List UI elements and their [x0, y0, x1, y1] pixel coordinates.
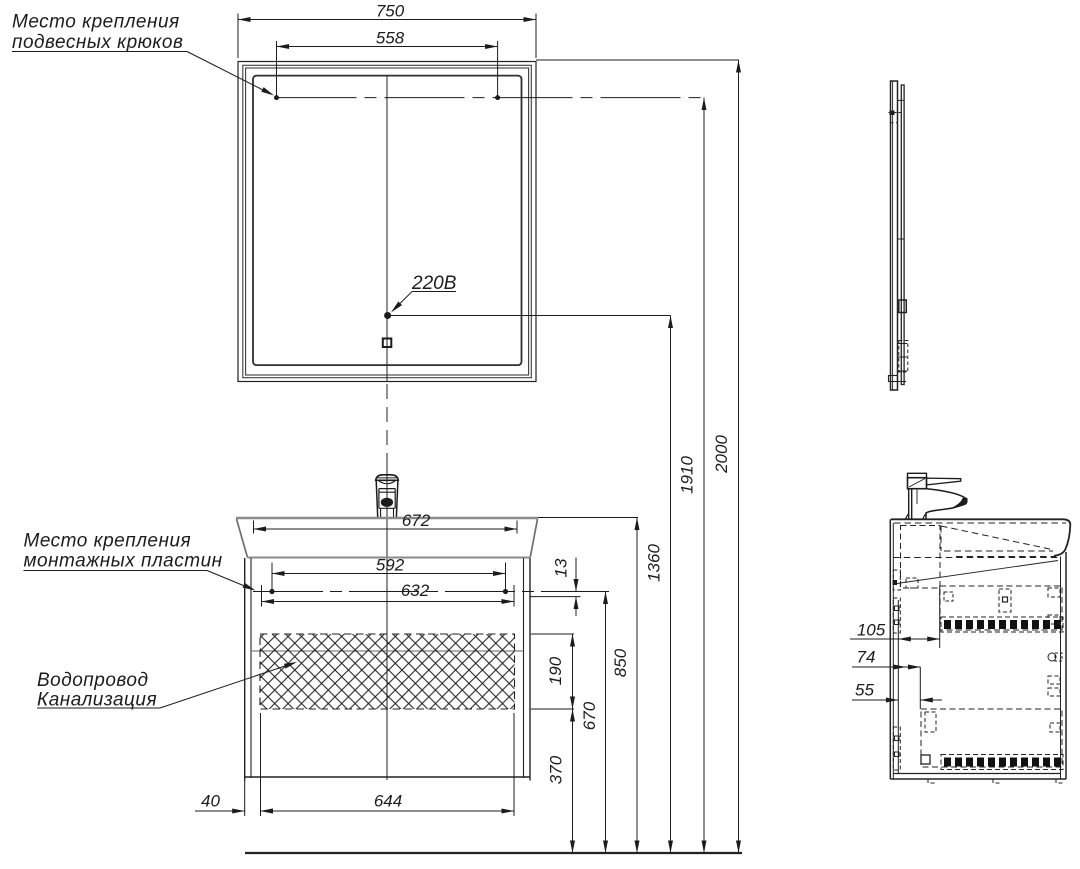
svg-text:13: 13	[552, 558, 571, 577]
svg-text:Канализация: Канализация	[37, 690, 157, 711]
svg-text:672: 672	[402, 511, 431, 530]
svg-text:558: 558	[376, 29, 405, 48]
svg-text:370: 370	[547, 755, 566, 784]
svg-text:монтажных пластин: монтажных пластин	[24, 551, 223, 572]
svg-text:74: 74	[857, 648, 876, 667]
svg-text:Водопровод: Водопровод	[37, 670, 148, 691]
svg-text:2000: 2000	[712, 435, 731, 474]
svg-text:644: 644	[374, 792, 402, 811]
svg-text:подвесных крюков: подвесных крюков	[12, 32, 183, 53]
svg-text:632: 632	[401, 581, 430, 600]
svg-text:670: 670	[580, 701, 599, 730]
svg-text:105: 105	[857, 621, 886, 640]
svg-text:220В: 220В	[411, 273, 457, 294]
svg-text:850: 850	[611, 648, 630, 677]
svg-text:190: 190	[546, 656, 565, 685]
svg-text:Место крепления: Место крепления	[24, 531, 192, 552]
svg-text:592: 592	[376, 556, 405, 575]
svg-text:40: 40	[201, 792, 220, 811]
svg-text:55: 55	[855, 681, 874, 700]
svg-text:1910: 1910	[678, 456, 697, 494]
svg-text:Место крепления: Место крепления	[12, 12, 180, 33]
svg-text:750: 750	[376, 2, 405, 21]
svg-text:1360: 1360	[645, 544, 664, 582]
